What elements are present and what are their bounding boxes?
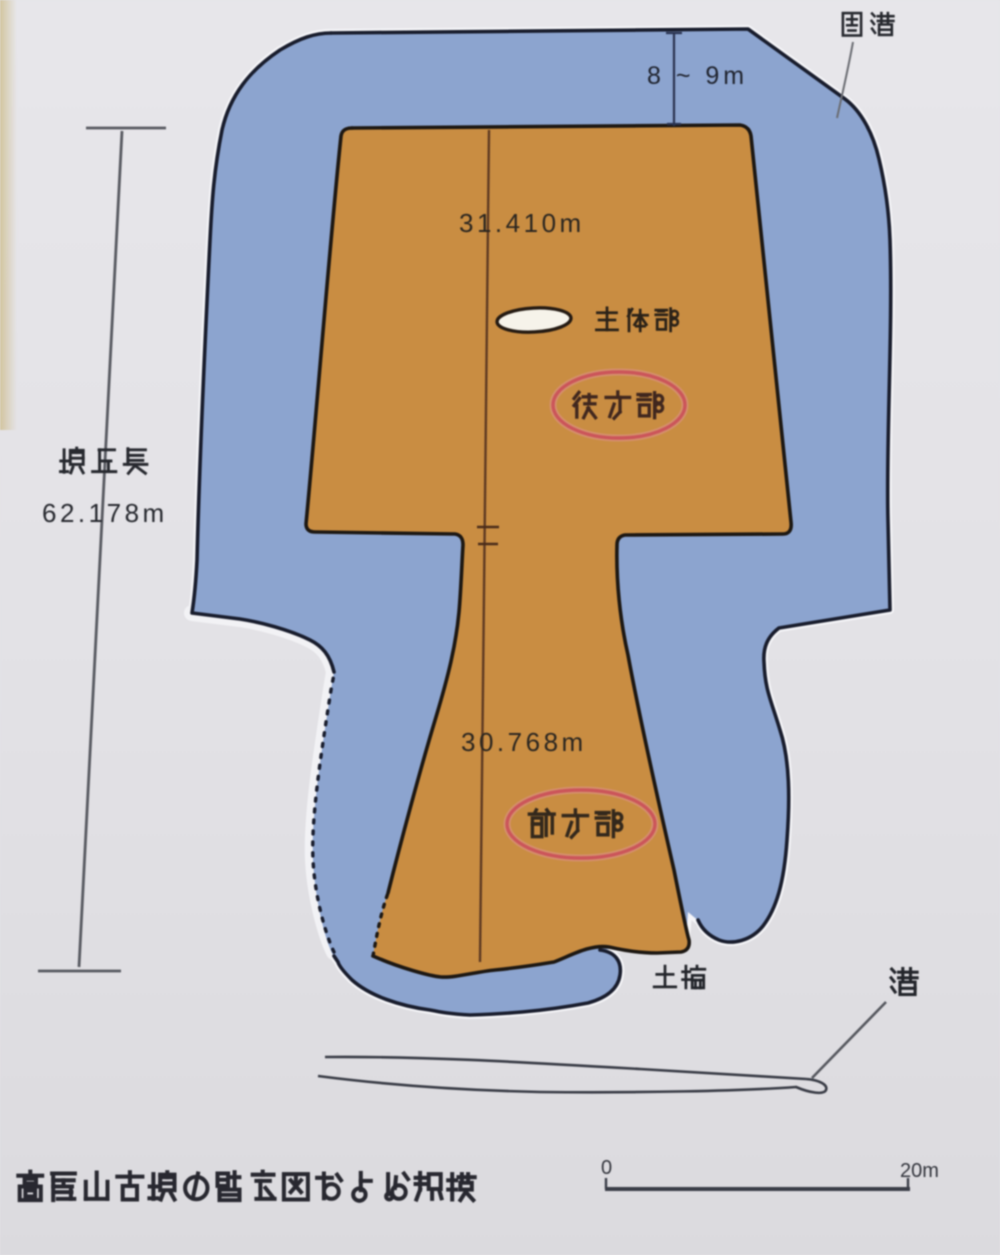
- svg-text:30.768m: 30.768m: [461, 727, 587, 757]
- svg-text:31.410m: 31.410m: [459, 208, 585, 238]
- svg-text:0: 0: [601, 1157, 612, 1179]
- svg-text:62.178m: 62.178m: [42, 498, 168, 528]
- svg-text:20m: 20m: [900, 1160, 939, 1182]
- svg-text:8 ~ 9m: 8 ~ 9m: [647, 62, 748, 90]
